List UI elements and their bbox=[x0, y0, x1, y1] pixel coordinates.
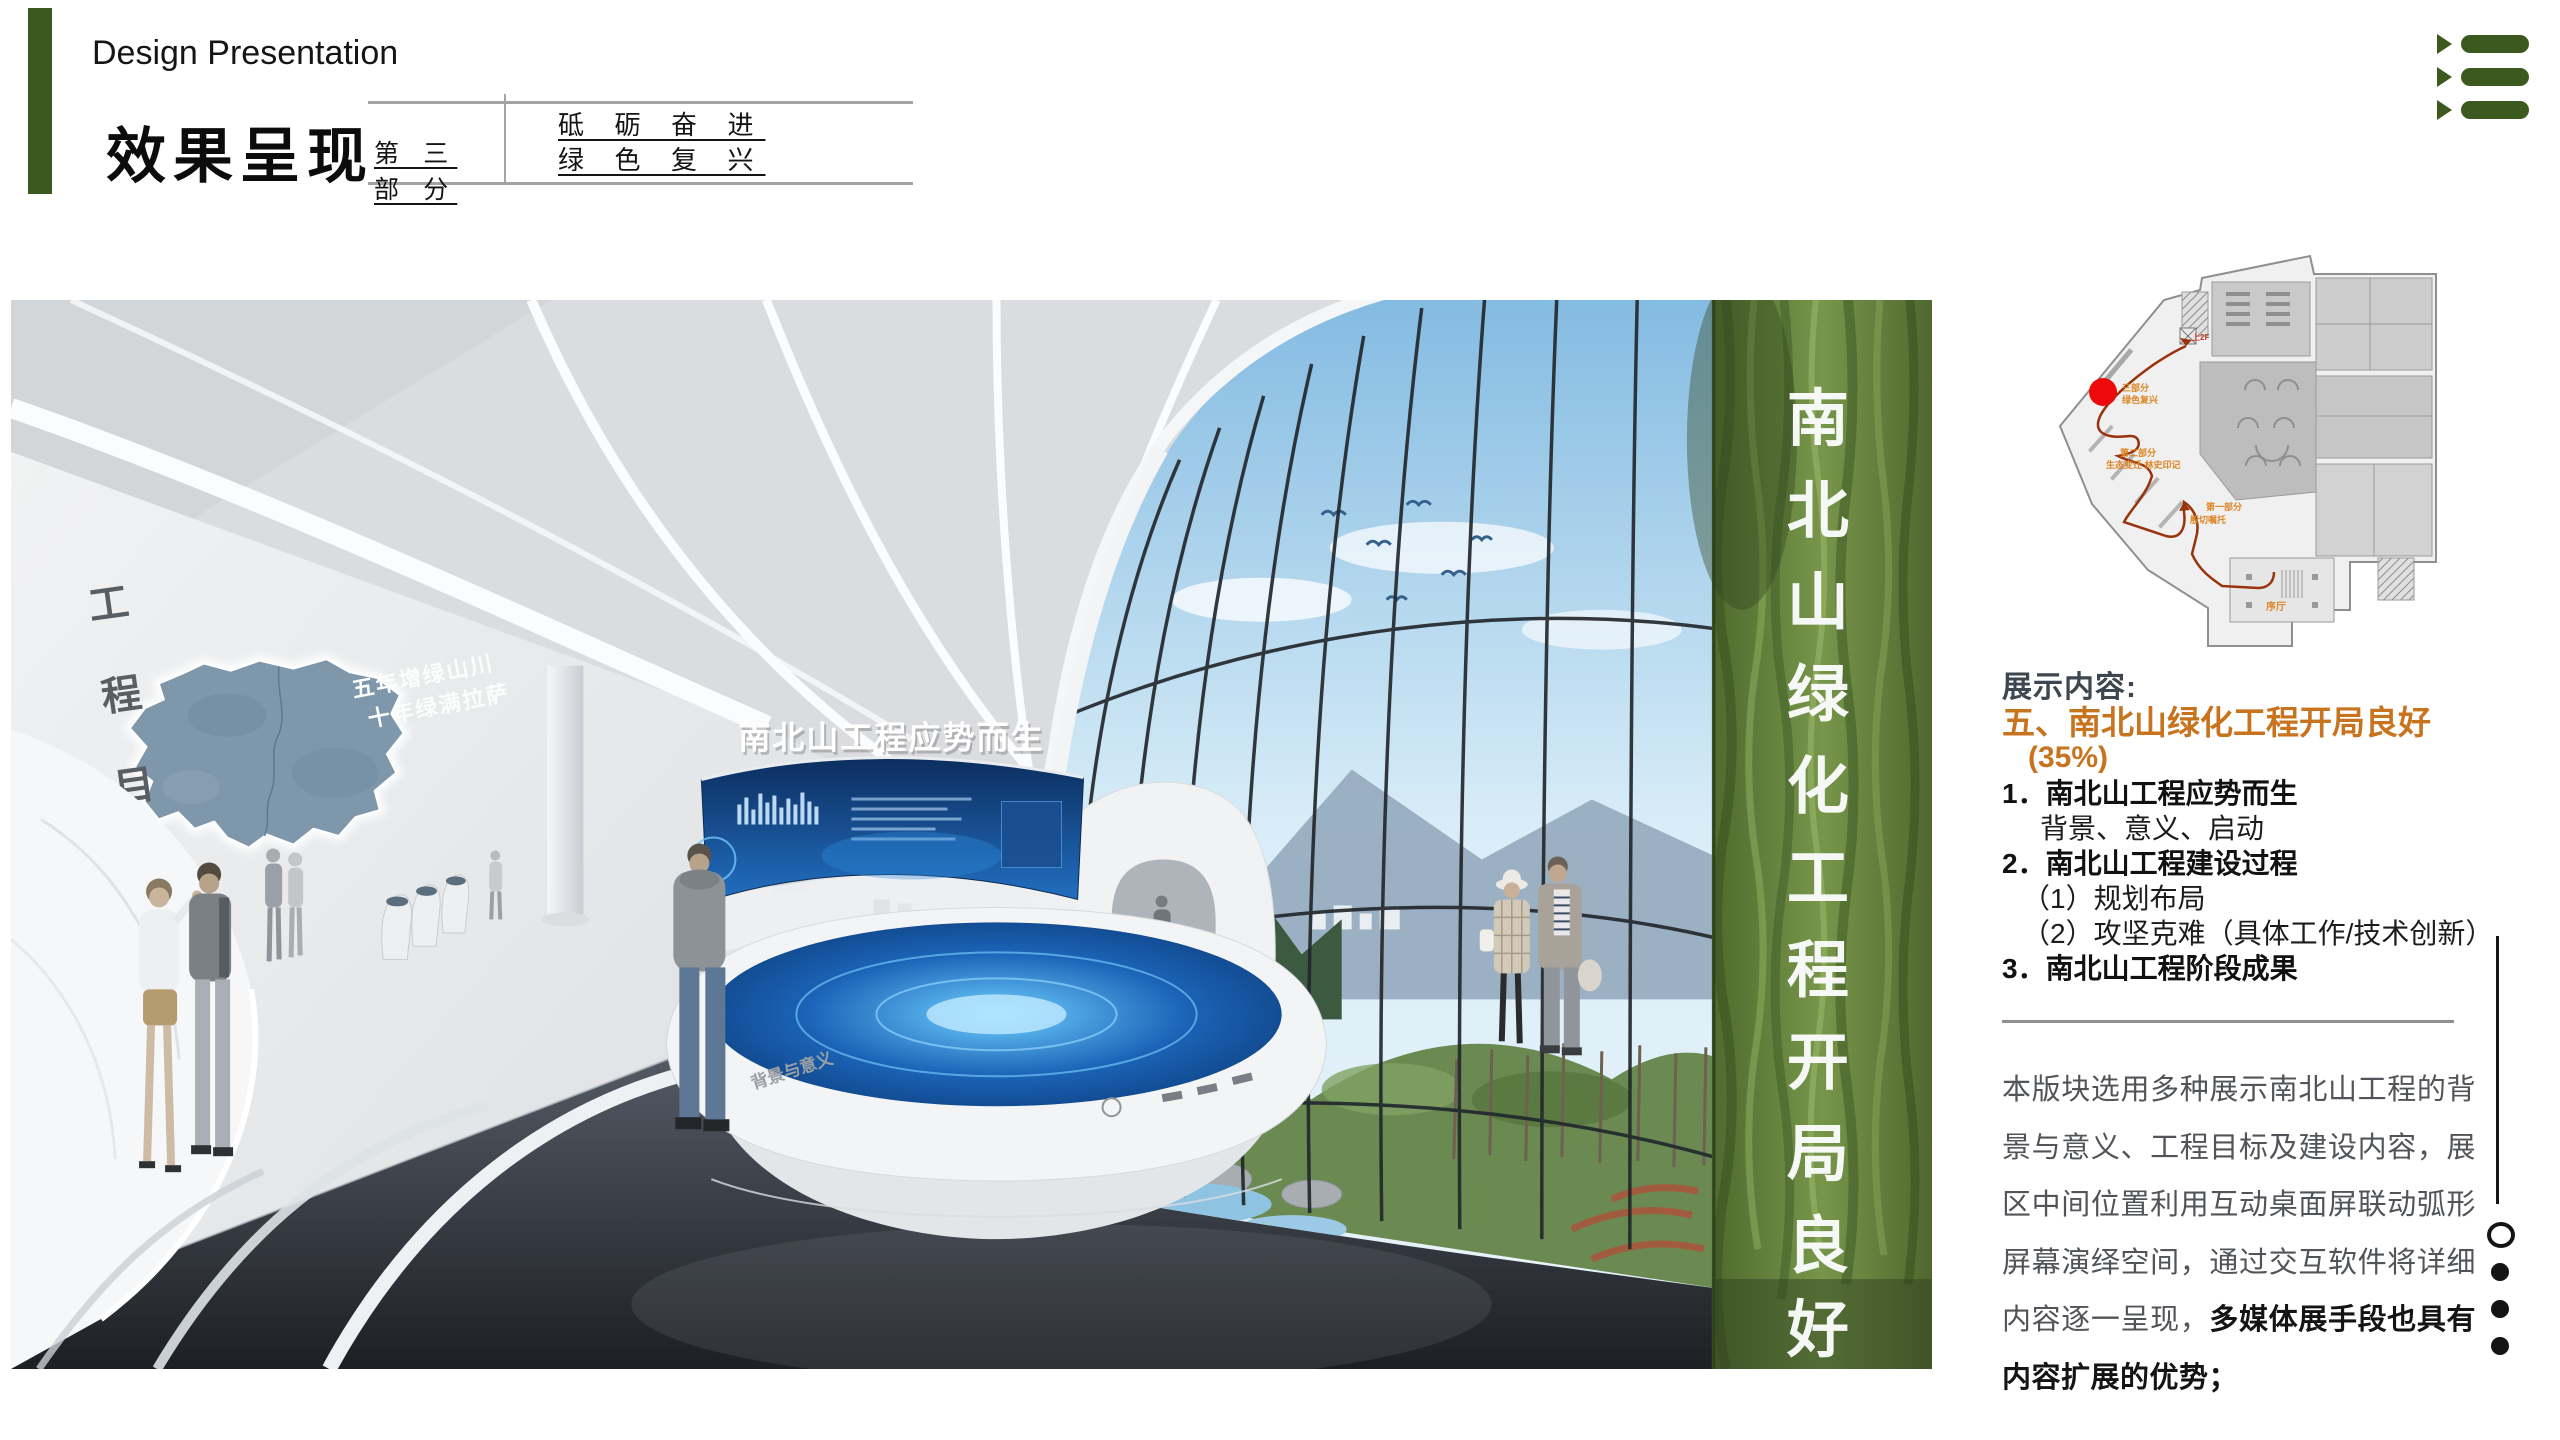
svg-text:序厅: 序厅 bbox=[2266, 600, 2286, 613]
table-divider bbox=[504, 94, 506, 182]
floorplan-svg: 三部分 绿色复兴 第二部分 生态变迁 林史印记 第一部分 殷切嘱托 序厅 上2F bbox=[2030, 240, 2450, 660]
presentation-slide: Design Presentation 效果呈现 第 三 部 分 砥 砺 奋 进… bbox=[0, 0, 2560, 1440]
pager-dot[interactable] bbox=[2491, 1337, 2509, 1355]
svg-text:工: 工 bbox=[1787, 844, 1849, 913]
svg-text:绿: 绿 bbox=[1787, 661, 1850, 730]
list-item: （1）规划布局 bbox=[2002, 881, 2558, 916]
pager-current-dot[interactable] bbox=[2487, 1222, 2515, 1248]
edge-rule bbox=[2496, 936, 2499, 1204]
svg-text:南: 南 bbox=[1787, 385, 1849, 454]
part-cell: 第 三 部 分 bbox=[368, 104, 502, 182]
svg-text:程: 程 bbox=[99, 671, 145, 720]
svg-text:绿色复兴: 绿色复兴 bbox=[2122, 394, 2158, 405]
pager-dot[interactable] bbox=[2491, 1300, 2509, 1318]
triangle-bullet-icon bbox=[2437, 67, 2452, 87]
part-table: 第 三 部 分 砥 砺 奋 进 绿 色 复 兴 bbox=[368, 101, 913, 185]
section-divider bbox=[2002, 1020, 2454, 1023]
triangle-bullet-icon bbox=[2437, 34, 2452, 54]
panel-title: 五、南北山绿化工程开局良好 bbox=[2002, 696, 2431, 744]
menu-bar bbox=[2461, 35, 2529, 53]
panel-percent: (35%) bbox=[2028, 741, 2108, 775]
description-paragraph: 本版块选用多种展示南北山工程的背景与意义、工程目标及建设内容，展区中间位置利用互… bbox=[2002, 1062, 2476, 1407]
svg-text:生态变迁 林史印记: 生态变迁 林史印记 bbox=[2106, 459, 2181, 470]
svg-text:局: 局 bbox=[1787, 1120, 1849, 1189]
list-menu-icon[interactable] bbox=[2437, 34, 2529, 133]
rendering-scene: 南 北 山 绿 化 工 程 开 局 良 好 工 程 bbox=[11, 300, 1932, 1369]
list-item: 1．南北山工程应势而生 bbox=[2002, 776, 2558, 811]
svg-text:化: 化 bbox=[1787, 753, 1849, 822]
current-location-marker bbox=[2089, 378, 2117, 406]
green-wall-vertical-title: 南 北 山 绿 化 工 程 开 局 良 好 bbox=[1786, 385, 1850, 1365]
column bbox=[541, 666, 589, 927]
svg-text:第二部分: 第二部分 bbox=[2120, 447, 2156, 458]
svg-text:第一部分: 第一部分 bbox=[2206, 501, 2242, 512]
list-item: 2．南北山工程建设过程 bbox=[2002, 846, 2558, 881]
page-title: 效果呈现 bbox=[106, 108, 374, 195]
triangle-bullet-icon bbox=[2437, 100, 2452, 120]
menu-bar bbox=[2461, 101, 2529, 119]
list-item: 3．南北山工程阶段成果 bbox=[2002, 951, 2558, 986]
screen-title: 南北山工程应势而生 bbox=[738, 720, 1044, 756]
svg-text:北: 北 bbox=[1787, 477, 1849, 546]
list-item: 背景、意义、启动 bbox=[2002, 811, 2558, 846]
svg-text:好: 好 bbox=[1786, 1296, 1849, 1365]
subtitle-en: Design Presentation bbox=[92, 34, 398, 73]
menu-row bbox=[2437, 100, 2529, 120]
svg-text:三部分: 三部分 bbox=[2122, 382, 2149, 393]
floorplan-keymap: 三部分 绿色复兴 第二部分 生态变迁 林史印记 第一部分 殷切嘱托 序厅 上2F bbox=[2030, 240, 2450, 660]
accent-bar bbox=[28, 8, 52, 194]
paragraph-normal: 本版块选用多种展示南北山工程的背景与意义、工程目标及建设内容，展区中间位置利用互… bbox=[2002, 1074, 2476, 1336]
slogan-cell: 砥 砺 奋 进 绿 色 复 兴 bbox=[558, 108, 766, 178]
exhibition-hall-rendering: 南 北 山 绿 化 工 程 开 局 良 好 工 程 bbox=[11, 300, 1932, 1369]
menu-bar bbox=[2461, 68, 2529, 86]
slogan-line-1: 砥 砺 奋 进 bbox=[558, 108, 766, 143]
part-label: 第 三 部 分 bbox=[374, 134, 502, 206]
svg-text:程: 程 bbox=[1787, 936, 1849, 1005]
svg-text:良: 良 bbox=[1787, 1212, 1849, 1281]
menu-row bbox=[2437, 67, 2529, 87]
svg-text:殷切嘱托: 殷切嘱托 bbox=[2189, 514, 2226, 525]
list-item: （2）攻坚克难（具体工作/技术创新） bbox=[2002, 916, 2558, 951]
svg-text:开: 开 bbox=[1787, 1028, 1849, 1097]
svg-text:工: 工 bbox=[86, 580, 132, 629]
svg-text:山: 山 bbox=[1787, 569, 1849, 638]
panel-item-list: 1．南北山工程应势而生 背景、意义、启动 2．南北山工程建设过程 （1）规划布局… bbox=[2002, 776, 2558, 986]
svg-text:上2F: 上2F bbox=[2192, 332, 2209, 342]
pager-dot[interactable] bbox=[2491, 1263, 2509, 1281]
green-plant-wall: 南 北 山 绿 化 工 程 开 局 良 好 bbox=[1687, 300, 1932, 1369]
menu-row bbox=[2437, 34, 2529, 54]
slogan-line-2: 绿 色 复 兴 bbox=[558, 143, 766, 178]
